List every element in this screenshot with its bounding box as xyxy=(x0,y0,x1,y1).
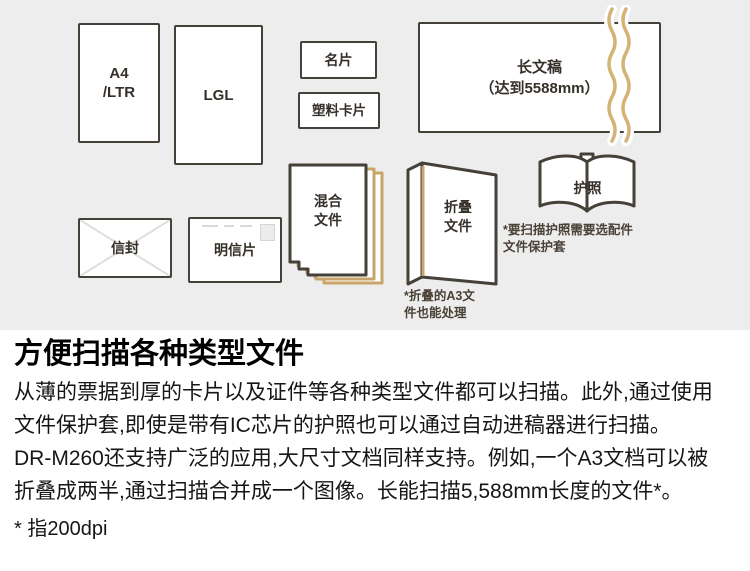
postcard: 明信片 xyxy=(188,217,282,283)
footnote: * 指200dpi xyxy=(14,512,107,541)
postcard-address-line-icon xyxy=(240,225,252,227)
document-types-diagram: A4 /LTR LGL 名片 塑料卡片 长文稿 （达到5588mm） xyxy=(0,0,750,330)
mixed-documents-label: 混合 文件 xyxy=(290,192,366,230)
body-paragraph-line-4: 折叠成两半,通过扫描合并成一个图像。长能扫描5,588mm长度的文件*。 xyxy=(14,475,683,505)
folded-document-note: *折叠的A3文 件也能处理 xyxy=(404,288,514,322)
body-paragraph-line-2: 文件保护套,即使是带有IC芯片的护照也可以通过自动进稿器进行扫描。 xyxy=(14,409,671,439)
postcard-label: 明信片 xyxy=(214,241,256,260)
long-document-length: （达到5588mm） xyxy=(479,78,599,99)
envelope: 信封 xyxy=(78,218,172,278)
lgl-label: LGL xyxy=(204,86,234,105)
plastic-card-label: 塑料卡片 xyxy=(312,102,366,120)
passport-label: 护照 xyxy=(530,178,645,198)
long-document-label: 长文稿 xyxy=(517,57,562,78)
body-paragraph-line-1: 从薄的票据到厚的卡片以及证件等各种类型文件都可以扫描。此外,通过使用 xyxy=(14,376,713,406)
passport-note: *要扫描护照需要选配件 文件保护套 xyxy=(503,222,693,256)
a4-ltr-label: A4 /LTR xyxy=(103,64,135,102)
page: A4 /LTR LGL 名片 塑料卡片 长文稿 （达到5588mm） xyxy=(0,0,750,571)
folded-document-label: 折叠 文件 xyxy=(422,198,494,236)
section-heading: 方便扫描各种类型文件 xyxy=(14,330,304,372)
business-card-label: 名片 xyxy=(325,51,353,70)
business-card: 名片 xyxy=(300,41,377,79)
envelope-label: 信封 xyxy=(111,239,139,258)
a4-ltr-sheet: A4 /LTR xyxy=(78,23,160,143)
postcard-stamp-icon xyxy=(260,224,275,241)
plastic-card: 塑料卡片 xyxy=(298,92,380,129)
lgl-sheet: LGL xyxy=(174,25,263,165)
postcard-address-line-icon xyxy=(224,225,234,227)
long-document-wave-icon xyxy=(595,5,649,155)
postcard-address-line-icon xyxy=(202,225,218,227)
body-paragraph-line-3: DR-M260还支持广泛的应用,大尺寸文档同样支持。例如,一个A3文档可以被 xyxy=(14,442,708,472)
